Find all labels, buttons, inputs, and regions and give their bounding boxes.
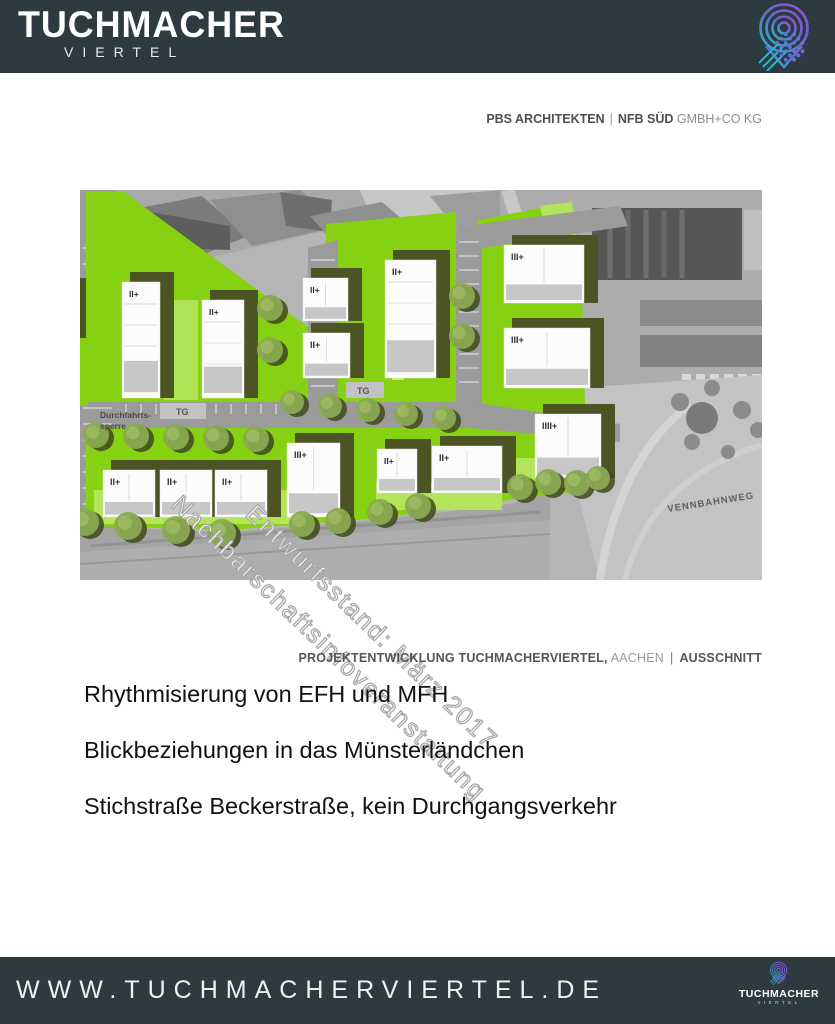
plan-building: III+ (504, 318, 604, 388)
tg-label-1: TG (176, 407, 189, 417)
site-plan-image: II+II+II+II+II+III+III+II+II+II+III+II+I… (80, 190, 762, 580)
brand-logo: TUCHMACHER VIERTEL (18, 4, 293, 60)
location-pin-rings-icon (753, 1, 817, 71)
building-floors-label: II+ (310, 285, 320, 295)
site-plan-svg: II+II+II+II+II+III+III+II+II+II+III+II+I… (80, 190, 762, 580)
building-floors-label: III+ (511, 252, 524, 262)
credit-developer: NFB SÜD (618, 112, 674, 126)
plan-building: II+ (202, 290, 258, 398)
building-floors-label: II+ (167, 477, 177, 487)
barrier-label-line1: Durchfahrts- (100, 410, 151, 420)
plan-building: IIII+ (535, 404, 615, 478)
tg-label-2: TG (357, 386, 370, 396)
building-floors-label: II+ (392, 267, 402, 277)
brand-title: TUCHMACHER (18, 4, 285, 46)
plan-building: II+ (122, 272, 174, 398)
plan-caption: PROJEKTENTWICKLUNG TUCHMACHERVIERTEL, AA… (298, 651, 762, 665)
credit-architect: PBS ARCHITEKTEN (486, 112, 604, 126)
plan-building: II+ (385, 250, 450, 378)
plan-building: III+ (287, 433, 354, 517)
plan-building: III+ (504, 235, 598, 303)
credit-separator: | (605, 112, 618, 126)
caption-detail: AUSSCHNITT (679, 651, 762, 665)
plan-building: II+ (215, 460, 281, 517)
plan-building: II+ (377, 439, 431, 493)
footer-brand-title: TUCHMACHER (731, 988, 827, 1000)
building-floors-label: IIII+ (542, 421, 557, 431)
plan-building: II+ (103, 460, 169, 517)
building-floors-label: II+ (222, 477, 232, 487)
footer-bar: WWW.TUCHMACHERVIERTEL.DE TUCHMACHER VIER… (0, 957, 835, 1024)
credit-developer-suffix: GMBH+CO KG (677, 112, 762, 126)
caption-project: PROJEKTENTWICKLUNG TUCHMACHERVIERTEL, (298, 651, 607, 665)
location-pin-rings-icon (768, 961, 790, 985)
credits-line: PBS ARCHITEKTEN|NFB SÜD GMBH+CO KG (486, 112, 762, 126)
footer-brand-subtitle: VIERTEL (731, 1000, 827, 1005)
bullet-line-3: Stichstraße Beckerstraße, kein Durchgang… (84, 793, 617, 820)
bullet-list: Rhythmisierung von EFH und MFH Blickbezi… (84, 681, 617, 849)
plan-building: II+ (432, 436, 516, 493)
building-floors-label: II+ (209, 307, 219, 317)
brand-subtitle: VIERTEL (64, 44, 293, 60)
footer-url-link[interactable]: WWW.TUCHMACHERVIERTEL.DE (16, 957, 607, 1024)
bullet-line-2: Blickbeziehungen in das Münsterländchen (84, 737, 617, 764)
building-floors-label: III+ (294, 450, 307, 460)
page: TUCHMACHER VIERTEL PBS ARCHITEKTEN|NFB S… (0, 0, 835, 1024)
plan-building: II+ (303, 268, 362, 321)
building-floors-label: III+ (511, 335, 524, 345)
building-floors-label: II+ (310, 340, 320, 350)
plan-building: II+ (303, 323, 364, 378)
footer-brand-logo: TUCHMACHER VIERTEL (731, 961, 827, 1005)
barrier-label-line2: sperre (100, 421, 126, 431)
bullet-line-1: Rhythmisierung von EFH und MFH (84, 681, 617, 708)
building-floors-label: II+ (129, 289, 139, 299)
caption-city: AACHEN (611, 651, 664, 665)
building-floors-label: II+ (384, 456, 394, 466)
caption-separator: | (664, 651, 679, 665)
building-floors-label: II+ (439, 453, 449, 463)
header-bar: TUCHMACHER VIERTEL (0, 0, 835, 73)
building-floors-label: II+ (110, 477, 120, 487)
